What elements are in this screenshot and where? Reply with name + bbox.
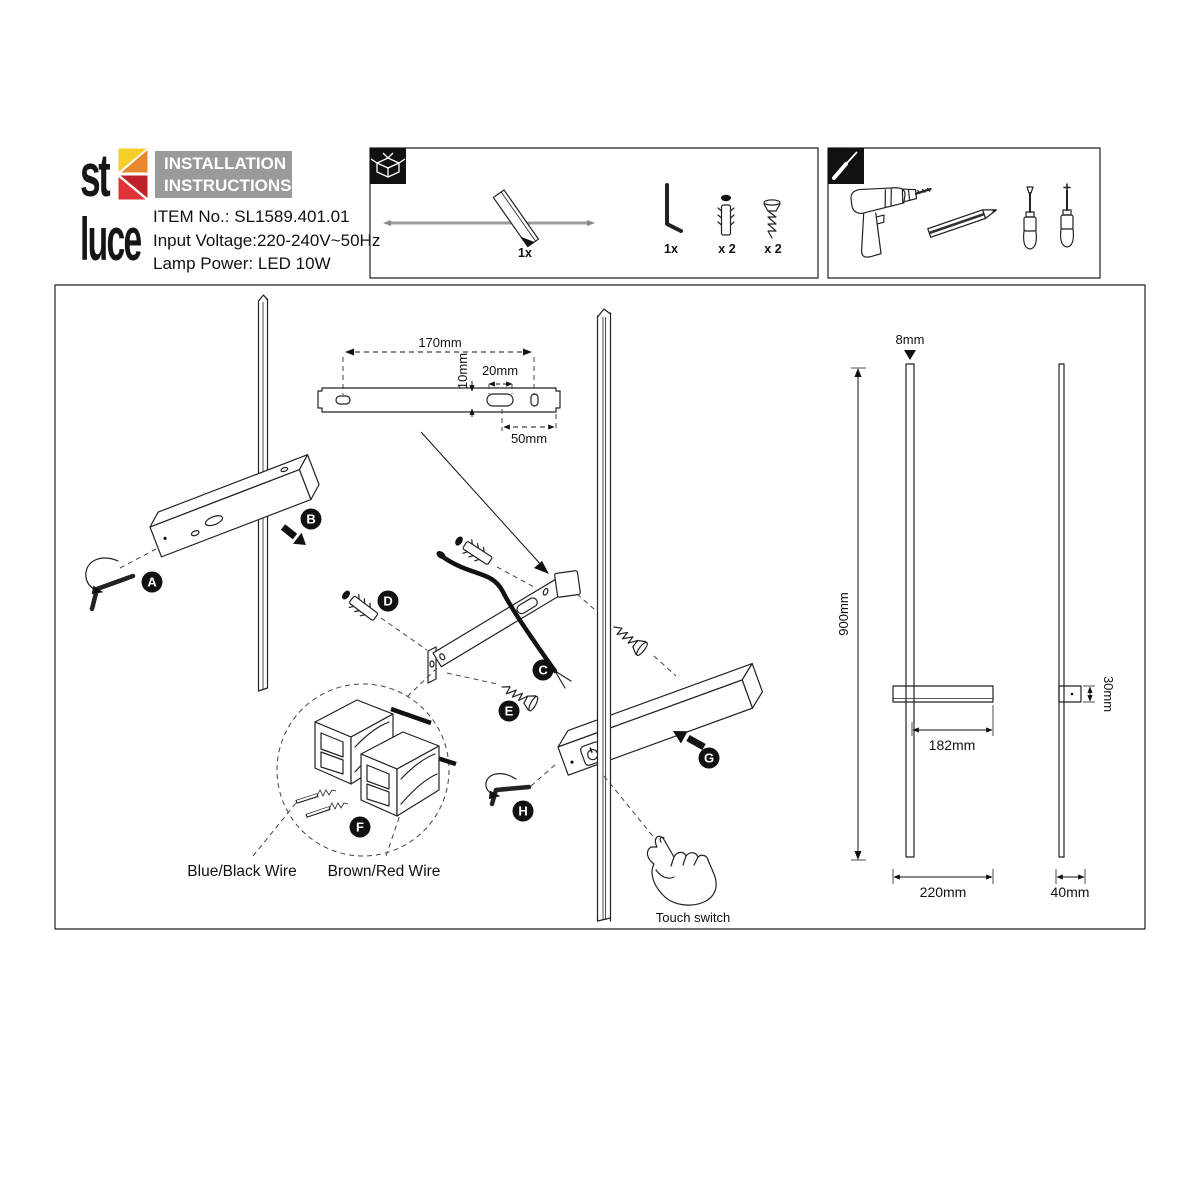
dim-30: 30mm	[1101, 676, 1116, 712]
screw-qty: x 2	[764, 242, 781, 256]
step-badge-h: H	[513, 801, 534, 822]
bracket-hook	[554, 570, 580, 597]
wire-1	[296, 790, 336, 802]
pointing-hand	[647, 836, 716, 905]
package-icon-tile	[370, 148, 406, 184]
step-badge-c: C	[533, 660, 554, 681]
front-view: 900mm 182mm 220mm	[836, 364, 993, 900]
wall-bracket	[433, 578, 566, 667]
screw-item	[764, 200, 780, 238]
svg-text:H: H	[518, 804, 527, 819]
lamp-qty: 1x	[518, 246, 532, 260]
hex-key-item	[667, 185, 681, 231]
wall-plug-2	[339, 587, 381, 624]
pencil-icon	[928, 206, 998, 238]
wall-anchor-item	[718, 195, 734, 235]
step-f-wiring-detail: F Blue/Black Wire Brown/Red Wire	[187, 684, 456, 880]
step-badge-a: A	[142, 572, 163, 593]
pointer-triangle	[904, 350, 916, 360]
slide-arrow-g	[673, 731, 704, 747]
rod-center	[598, 309, 611, 921]
dim-170: 170mm	[418, 335, 461, 350]
wall-plug-1	[452, 533, 494, 568]
svg-text:F: F	[356, 820, 364, 835]
svg-text:E: E	[505, 704, 514, 719]
wire-2	[306, 803, 348, 816]
dim-220: 220mm	[920, 884, 967, 900]
step-gh-assembly: G H Touch switch	[486, 309, 767, 925]
hex-key-qty: 1x	[664, 242, 678, 256]
tools-box	[828, 148, 1100, 278]
dim-10: 10mm	[455, 353, 470, 389]
installation-sheet: st luce INSTALLATION INSTRUCTIONS ITEM N…	[0, 0, 1200, 1200]
wire-label-blue-black: Blue/Black Wire	[187, 863, 296, 880]
rotate-arrow	[486, 774, 516, 796]
dimension-views: 8mm 900mm 182mm 220mm	[836, 332, 1116, 900]
wire-label-brown-red: Brown/Red Wire	[328, 863, 441, 880]
drill-icon	[850, 182, 937, 258]
hex-key-a	[86, 558, 133, 609]
dim-20: 20mm	[482, 363, 518, 378]
screwdriver-flat-icon	[1024, 187, 1037, 249]
lamp-body-g	[554, 664, 767, 776]
slide-arrow-b	[283, 527, 306, 545]
svg-text:C: C	[538, 663, 548, 678]
dim-40: 40mm	[1051, 884, 1090, 900]
svg-text:B: B	[306, 512, 315, 527]
touch-switch-label: Touch switch	[656, 910, 730, 925]
svg-text:D: D	[383, 594, 392, 609]
step-ab-assembly: A B	[86, 295, 323, 691]
step-badge-e: E	[499, 701, 520, 722]
hex-key-h	[486, 774, 529, 804]
dim-50: 50mm	[511, 431, 547, 446]
svg-text:A: A	[147, 575, 157, 590]
lamp-item	[383, 190, 595, 247]
svg-text:G: G	[704, 751, 714, 766]
diagram-canvas: 1x 1x x 2 x 2	[0, 0, 1200, 1200]
anchor-qty: x 2	[718, 242, 735, 256]
step-cde-assembly: C D E	[339, 533, 676, 722]
step-badge-f: F	[350, 817, 371, 838]
mount-screw-1	[609, 621, 649, 657]
step-badge-d: D	[378, 591, 399, 612]
dim-182: 182mm	[929, 737, 976, 753]
package-contents-box: 1x 1x x 2 x 2	[370, 148, 818, 278]
side-view: 30mm 40mm	[1051, 364, 1116, 900]
dim-8mm: 8mm	[896, 332, 925, 347]
dim-900: 900mm	[836, 592, 851, 635]
screwdriver-phillips-icon	[1061, 184, 1074, 247]
step-badge-b: B	[301, 509, 322, 530]
bracket-dimension-drawing: 170mm 10mm 20mm 50mm	[318, 335, 560, 574]
step-badge-g: G	[699, 748, 720, 769]
